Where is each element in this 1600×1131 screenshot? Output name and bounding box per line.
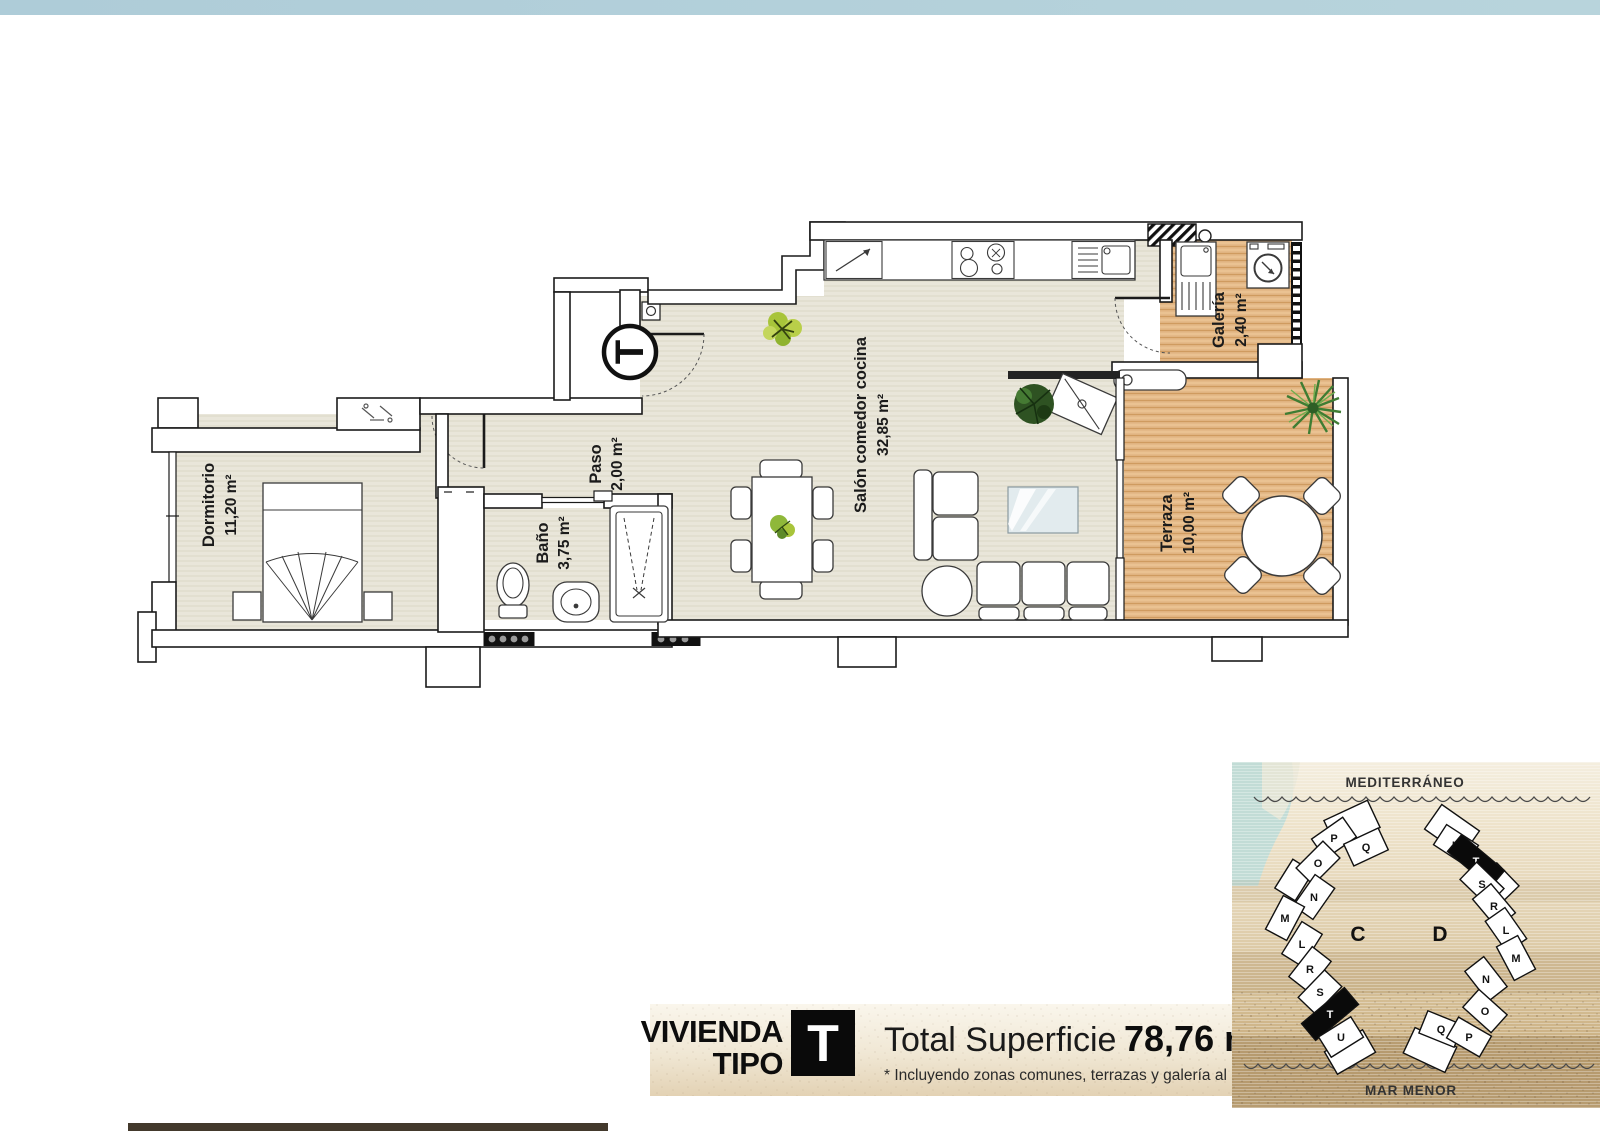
shower-icon xyxy=(610,506,668,622)
rug-icon xyxy=(1008,487,1078,533)
type-letter: T xyxy=(807,1015,839,1073)
terrace-corner-block xyxy=(1258,344,1302,378)
room-label-bano: Baño xyxy=(534,522,552,563)
nightstand-icon xyxy=(364,592,392,620)
terrace-window xyxy=(1117,460,1123,558)
room-area-salon: 32,85 m² xyxy=(875,394,892,456)
building-unit-letter: L xyxy=(1299,939,1306,951)
pouf-icon xyxy=(922,566,972,616)
wall-corner-block xyxy=(158,398,198,428)
floor-plan: T Dormitorio 11,20 m² Paso 2,00 m² Baño … xyxy=(138,222,1348,687)
lagoon-label: MAR MENOR xyxy=(1365,1083,1457,1098)
vent-strip-1 xyxy=(484,633,534,646)
wall-fixture-circle xyxy=(1199,230,1211,242)
sea-label: MEDITERRÁNEO xyxy=(1345,775,1464,790)
room-area-bano: 3,75 m² xyxy=(556,516,573,569)
landing-left-wall xyxy=(554,292,570,400)
banner-footnote: * Incluyendo zonas comunes, terrazas y g… xyxy=(884,1067,1275,1084)
bedroom-window-wall xyxy=(169,452,176,582)
bottom-pillar-block xyxy=(426,647,480,687)
gallery-left-wall xyxy=(1160,240,1172,302)
bedroom-door-opening xyxy=(433,400,482,413)
building-c-label: C xyxy=(1350,923,1365,946)
room-label-salon: Salón comedor cocina xyxy=(852,336,870,513)
hall-floor xyxy=(448,414,672,497)
room-area-galeria: 2,40 m² xyxy=(1233,293,1250,346)
kitchen-counter xyxy=(824,240,1135,280)
building-unit-letter: S xyxy=(1316,987,1323,999)
building-unit-letter: U xyxy=(1337,1032,1345,1044)
toilet-icon xyxy=(497,563,529,618)
nightstand-icon xyxy=(233,592,261,620)
sliding-door-handle xyxy=(594,491,612,501)
room-area-dormitorio: 11,20 m² xyxy=(223,474,240,535)
type-banner: VIVIENDA TIPO T Total Superficie 78,76 m… xyxy=(641,1004,1276,1096)
building-unit-letter: Q xyxy=(1362,842,1371,854)
building-unit-letter: L xyxy=(1503,925,1510,937)
wall-heater-icon xyxy=(1114,370,1186,390)
kitchen-top-wall xyxy=(810,222,1302,240)
bottom-photo-strip xyxy=(128,1123,608,1131)
room-label-dormitorio: Dormitorio xyxy=(200,463,218,547)
banner-tipo: TIPO xyxy=(713,1046,783,1081)
bedroom-top-wall xyxy=(152,428,420,452)
top-accent-bar xyxy=(0,0,1600,15)
building-unit-letter: Q xyxy=(1437,1024,1446,1036)
site-map-inset: MEDITERRÁNEO MAR MENOR PQONMLRSTUUTSRLMN… xyxy=(1232,762,1600,1108)
terrace-left-wall-lower xyxy=(1116,558,1124,620)
bathroom-sink-icon xyxy=(553,582,599,622)
living-terrace-bottom-wall xyxy=(658,620,1348,637)
entrance-type-letter: T xyxy=(608,340,652,364)
building-unit-letter: O xyxy=(1481,1006,1490,1018)
bathroom-top-wall-left xyxy=(484,494,542,508)
washing-machine-icon xyxy=(1247,242,1289,288)
room-label-galeria: Galería xyxy=(1210,291,1228,348)
banner-vivienda: VIVIENDA xyxy=(641,1014,784,1049)
building-d-label: D xyxy=(1432,923,1447,946)
bottom-pillar-block-2 xyxy=(838,637,896,667)
hall-side-wall xyxy=(436,414,448,498)
building-unit-letter: P xyxy=(1465,1032,1472,1044)
building-unit-letter: M xyxy=(1280,913,1289,925)
bedroom-window-bay xyxy=(337,398,420,430)
room-label-terraza: Terraza xyxy=(1158,493,1176,551)
brochure-page: T Dormitorio 11,20 m² Paso 2,00 m² Baño … xyxy=(0,0,1600,1131)
bottom-pillar-block-3 xyxy=(1212,637,1262,661)
building-unit-letter: O xyxy=(1314,858,1323,870)
entrance-type-marker: T xyxy=(604,326,656,378)
room-label-paso: Paso xyxy=(587,444,605,483)
building-unit-letter: R xyxy=(1490,901,1498,913)
room-area-paso: 2,00 m² xyxy=(609,437,626,490)
building-unit-letter: R xyxy=(1306,964,1314,976)
building-unit-letter: T xyxy=(1327,1009,1334,1021)
terrace-left-wall-upper xyxy=(1116,378,1124,460)
wardrobe xyxy=(438,487,484,632)
floor-plan-canvas: T Dormitorio 11,20 m² Paso 2,00 m² Baño … xyxy=(0,0,1600,1131)
building-unit-letter: N xyxy=(1310,892,1318,904)
bedroom-bottom-wall xyxy=(152,630,672,647)
plant-icon-dark xyxy=(1014,384,1054,424)
room-area-terraza: 10,00 m² xyxy=(1181,492,1198,554)
building-unit-letter: M xyxy=(1511,953,1520,965)
terrace-table xyxy=(1242,496,1322,576)
building-unit-letter: P xyxy=(1330,833,1337,845)
gallery-window-slats xyxy=(1291,242,1302,352)
building-unit-letter: N xyxy=(1482,974,1490,986)
total-superficie-label: Total Superficie xyxy=(884,1021,1116,1059)
